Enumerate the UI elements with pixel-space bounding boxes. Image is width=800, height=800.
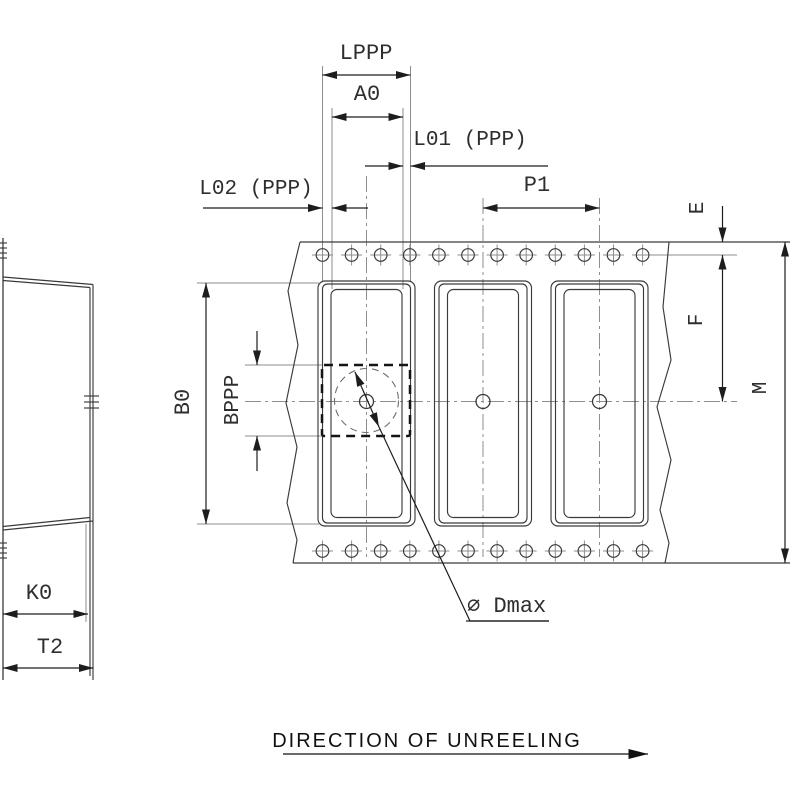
dim-label-f: F [686,314,709,327]
sprocket-hole [603,245,624,266]
sprocket-hole [458,541,479,562]
sprocket-hole [487,245,508,266]
dim-label-t2: T2 [37,635,63,660]
sprocket-hole [487,541,508,562]
dim-label-m: M [750,382,773,395]
sprocket-hole [370,541,391,562]
dim-label-l01: L01 (PPP) [413,129,526,152]
sprocket-hole [516,245,537,266]
sprocket-hole [428,245,449,266]
sprocket-hole [312,541,333,562]
sprocket-hole [632,245,653,266]
sprocket-hole [574,541,595,562]
dim-label-p1: P1 [524,173,550,198]
pocket-top-wall-outer [3,277,93,285]
dim-label-k0: K0 [26,581,52,606]
sprocket-hole [428,541,449,562]
sprocket-hole [516,541,537,562]
sprocket-hole [545,245,566,266]
sprocket-hole [574,245,595,266]
sprocket-hole [312,245,333,266]
pocket-top-wall-inner [3,281,90,288]
dim-label-lppp: LPPP [340,41,393,66]
sprocket-hole [341,245,362,266]
sprocket-hole [399,245,420,266]
sprocket-hole [370,245,391,266]
sprocket-hole [632,541,653,562]
dim-label-a0: A0 [354,82,380,107]
dimension-labels: LPPP A0 L01 (PPP) L02 (PPP) P1 E F M B0 … [26,41,773,660]
dim-label-b0: B0 [171,389,196,415]
sprocket-hole [545,541,566,562]
dim-label-l02: L02 (PPP) [199,178,312,201]
extension-lines [86,66,737,622]
sprocket-hole [603,541,624,562]
tape-front-view [286,242,790,621]
dim-label-e: E [687,202,710,215]
sprocket-hole [458,245,479,266]
sprocket-hole [341,541,362,562]
drawing-canvas: LPPP A0 L01 (PPP) L02 (PPP) P1 E F M B0 … [0,0,800,800]
side-view-break-marks [84,396,99,408]
tape-break-right [657,242,671,563]
direction-of-unreeling: DIRECTION OF UNREELING [272,730,648,754]
tape-break-left [286,242,300,563]
direction-label: DIRECTION OF UNREELING [272,730,582,752]
dmax-leader-line [379,427,549,621]
tape-and-reel-drawing: LPPP A0 L01 (PPP) L02 (PPP) P1 E F M B0 … [0,0,800,800]
sprocket-hole [399,541,420,562]
dim-label-dmax: ∅ Dmax [467,594,546,619]
center-lines [245,176,737,557]
dim-label-bppp: BPPP [222,375,245,425]
